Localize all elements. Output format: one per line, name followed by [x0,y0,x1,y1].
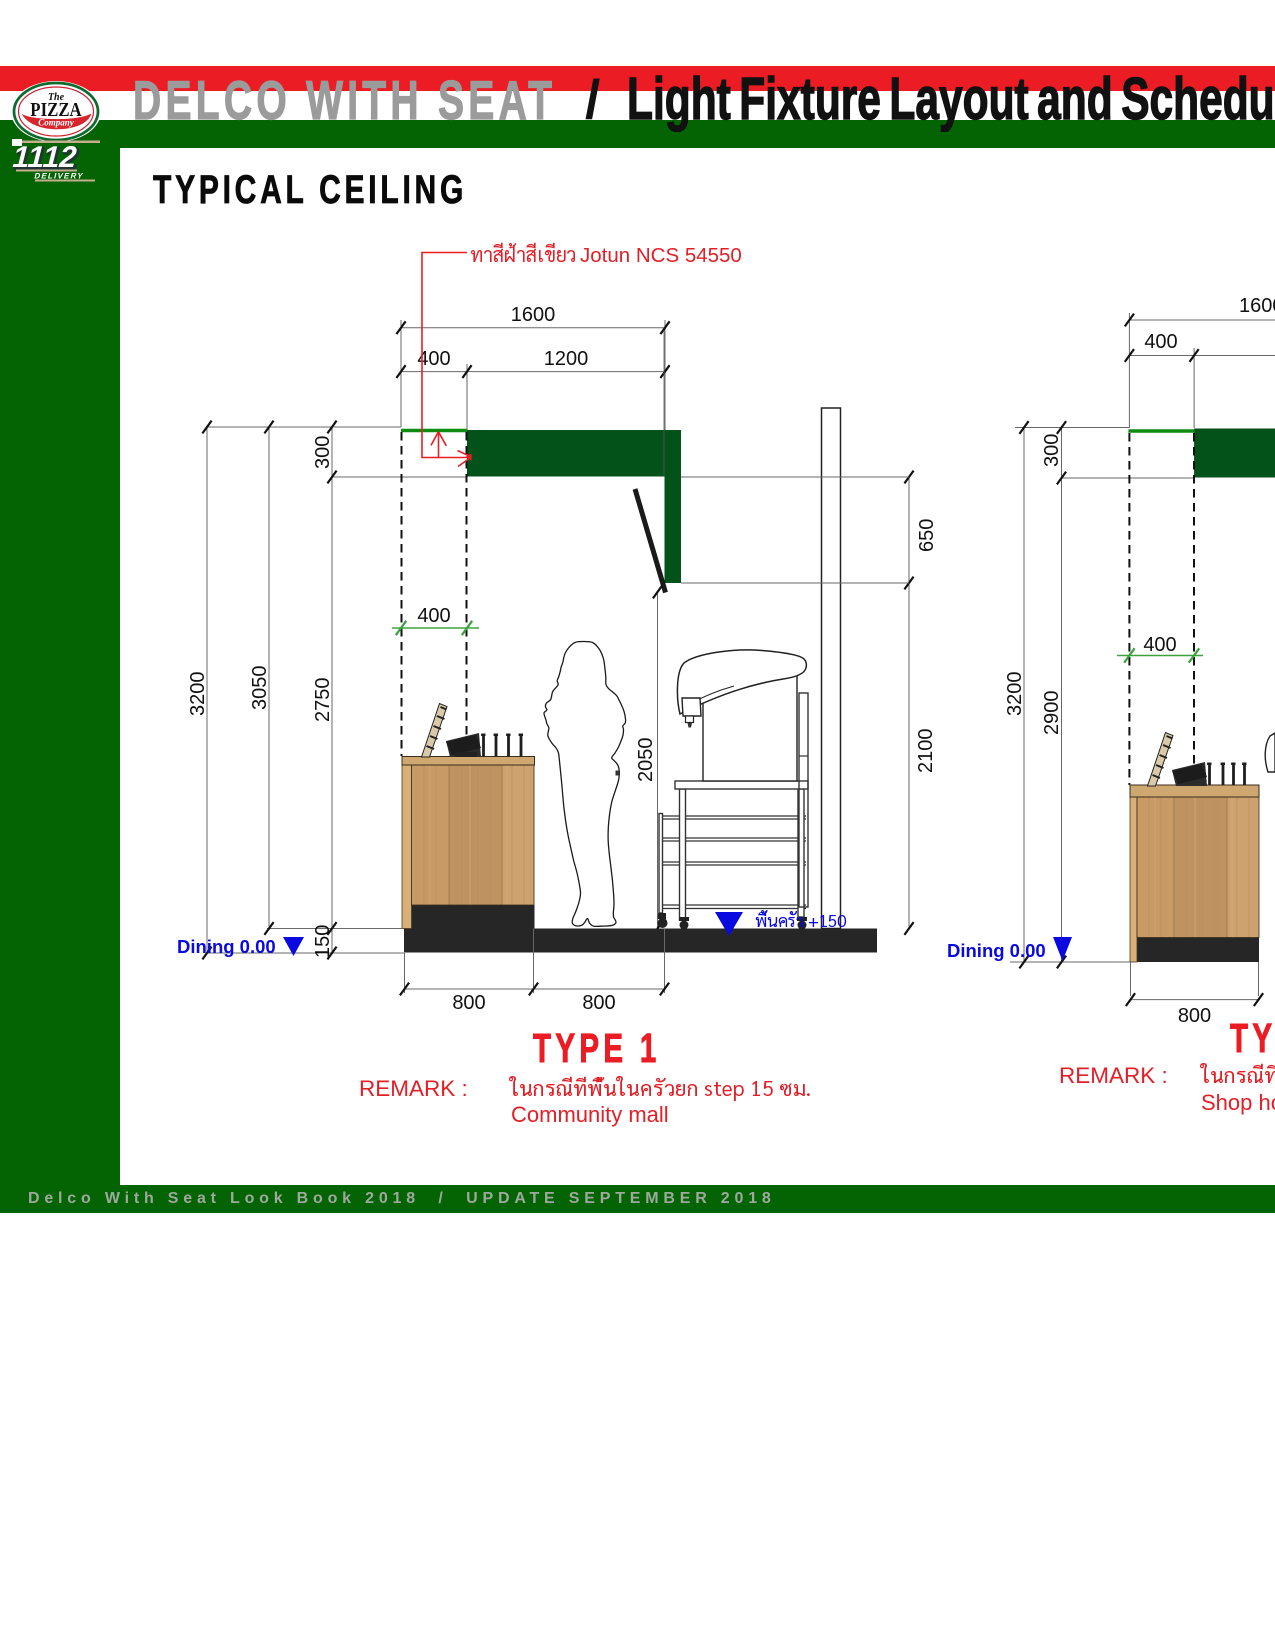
svg-text:3200: 3200 [187,672,209,717]
svg-text:400: 400 [1144,331,1177,353]
svg-text:150: 150 [312,925,334,958]
svg-text:TYPE 2: TYPE 2 [1230,1015,1275,1061]
svg-text:300: 300 [312,436,334,469]
svg-text:2100: 2100 [915,729,937,774]
svg-text:2750: 2750 [312,678,334,723]
svg-text:1600: 1600 [1239,295,1275,317]
svg-text:2050: 2050 [635,738,657,783]
svg-text:800: 800 [582,992,615,1014]
svg-text:Dining 0.00: Dining 0.00 [947,940,1046,961]
svg-text:800: 800 [452,992,485,1014]
svg-text:REMARK :: REMARK : [1059,1063,1168,1088]
svg-text:REMARK :: REMARK : [359,1076,468,1101]
svg-text:Shop house: Shop house [1201,1090,1275,1115]
svg-text:Dining 0.00: Dining 0.00 [177,936,276,957]
svg-text:TYPE 1: TYPE 1 [533,1025,661,1071]
svg-text:2900: 2900 [1041,691,1063,736]
svg-text:650: 650 [916,519,938,552]
svg-text:Jotun NCS 54550: Jotun NCS 54550 [580,244,742,267]
svg-text:1200: 1200 [544,348,589,370]
svg-text:1600: 1600 [511,304,556,326]
svg-text:Community mall: Community mall [511,1102,669,1127]
svg-text:300: 300 [1041,434,1063,467]
svg-text:3200: 3200 [1004,672,1026,717]
svg-text:800: 800 [1178,1005,1211,1027]
svg-text:400: 400 [417,605,450,627]
svg-text:400: 400 [1143,634,1176,656]
svg-text:3050: 3050 [249,666,271,711]
